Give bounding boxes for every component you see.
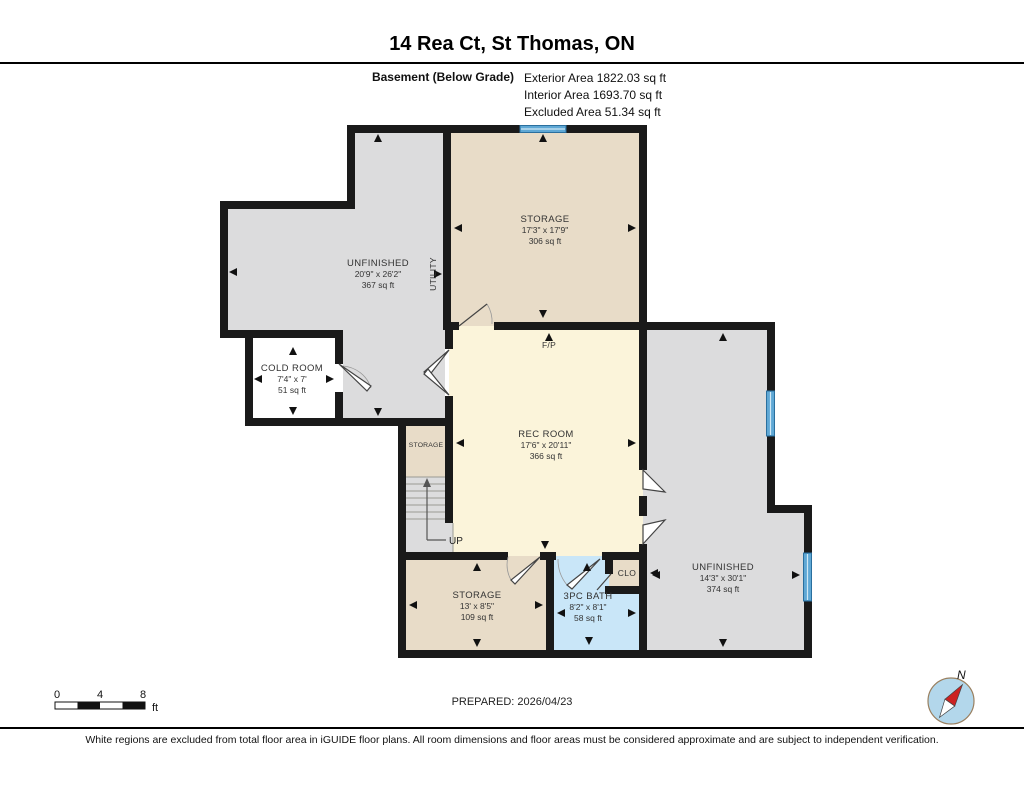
window-storage-top <box>520 126 566 133</box>
storage-top-area-label: 306 sq ft <box>529 236 562 246</box>
storage-small-label: STORAGE <box>409 442 444 449</box>
up-label: UP <box>449 536 463 547</box>
rec-room-dims: 17'6" x 20'11" <box>521 440 572 450</box>
bath-name: 3PC BATH <box>564 591 613 602</box>
room-unfinished-right-area <box>643 326 808 654</box>
unfinished-left-area-label: 367 sq ft <box>362 280 395 290</box>
storage-bottom-area-label: 109 sq ft <box>461 612 494 622</box>
footer-divider <box>0 727 1024 729</box>
unfinished-left-dims: 20'9" x 26'2" <box>355 269 402 279</box>
cold-room-name: COLD ROOM <box>261 363 323 374</box>
window-unfinished-right-upper <box>767 391 775 436</box>
window-unfinished-right-lower <box>804 553 812 601</box>
unfinished-right-name: UNFINISHED <box>692 562 754 573</box>
rec-room-area-label: 366 sq ft <box>530 451 563 461</box>
storage-top-name: STORAGE <box>520 214 569 225</box>
compass-north-label: N <box>957 668 966 682</box>
closet-label: CLO <box>618 568 636 578</box>
rec-room-name: REC ROOM <box>518 429 573 440</box>
bath-area-label: 58 sq ft <box>574 613 603 623</box>
storage-bottom-dims: 13' x 8'5" <box>460 601 494 611</box>
unfinished-right-area-label: 374 sq ft <box>707 584 740 594</box>
fireplace-label: F/P <box>542 340 556 350</box>
floor-plan-drawing: STORAGE 17'3" x 17'9" 306 sq ft UNFINISH… <box>0 0 1024 791</box>
storage-bottom-name: STORAGE <box>452 590 501 601</box>
floor-plan-page: 14 Rea Ct, St Thomas, ON Basement (Below… <box>0 0 1024 791</box>
bath-dims: 8'2" x 8'1" <box>569 602 606 612</box>
storage-top-dims: 17'3" x 17'9" <box>522 225 569 235</box>
utility-label: UTILITY <box>428 257 438 291</box>
cold-room-dims: 7'4" x 7' <box>277 374 307 384</box>
unfinished-right-dims: 14'3" x 30'1" <box>700 573 747 583</box>
prepared-date: PREPARED: 2026/04/23 <box>0 696 1024 708</box>
cold-room-area-label: 51 sq ft <box>278 385 307 395</box>
unfinished-left-name: UNFINISHED <box>347 258 409 269</box>
disclaimer-text: White regions are excluded from total fl… <box>0 734 1024 746</box>
room-storage-small-area <box>402 422 449 477</box>
